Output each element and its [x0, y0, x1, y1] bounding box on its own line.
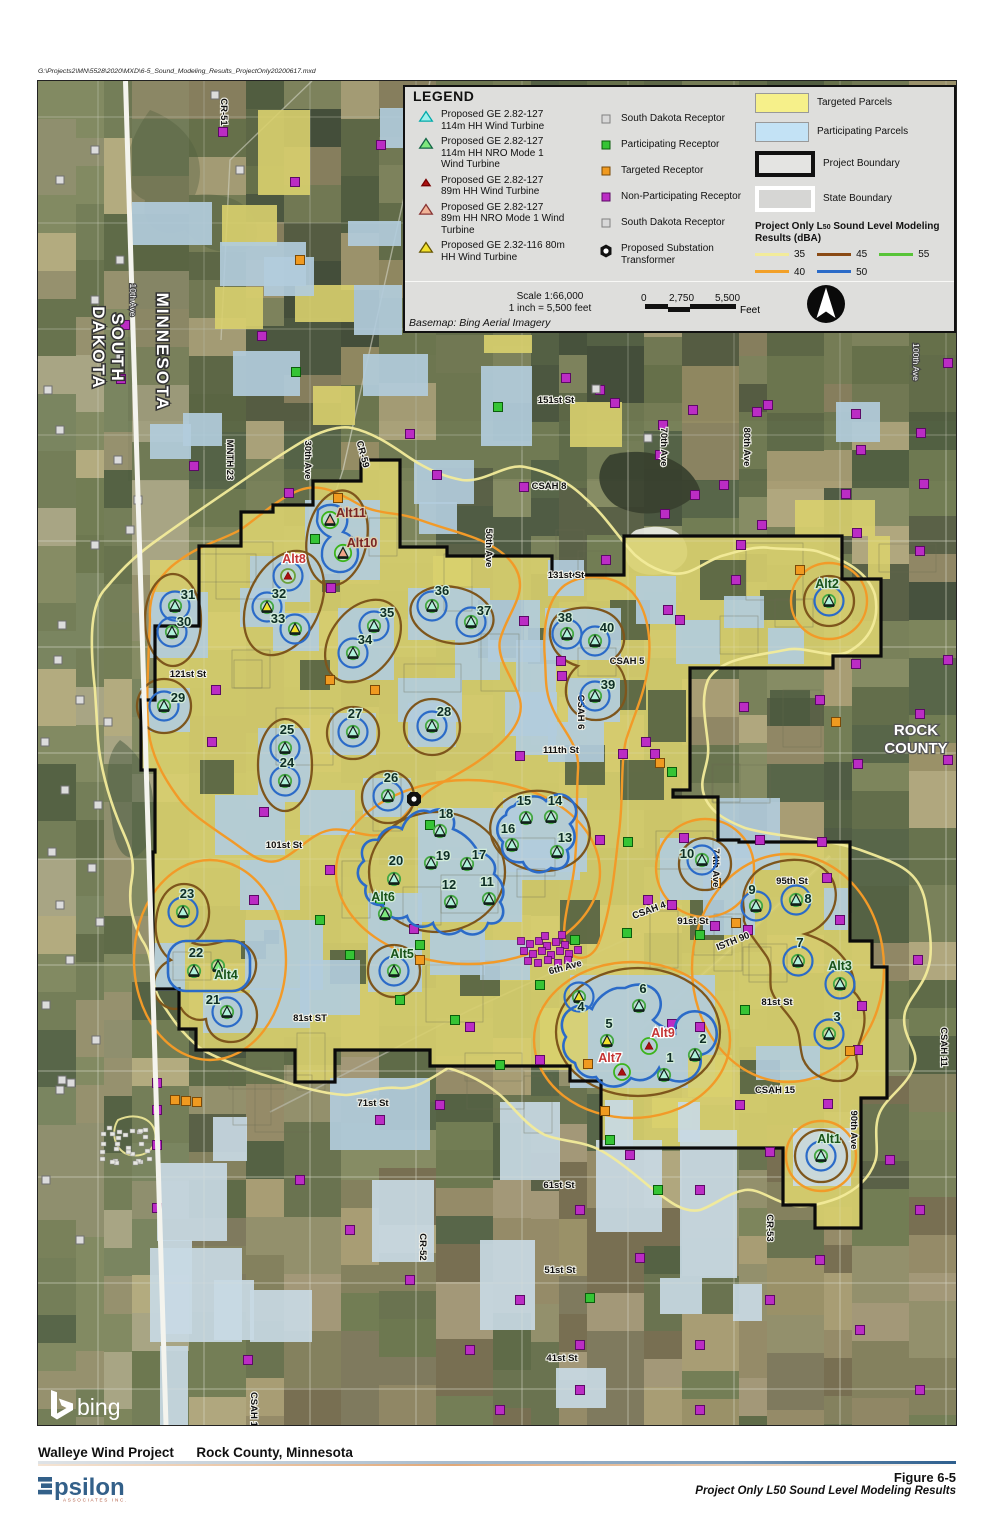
- svg-text:ROCK: ROCK: [894, 722, 938, 739]
- svg-text:3: 3: [833, 1009, 840, 1024]
- svg-text:7: 7: [796, 935, 803, 950]
- svg-text:CSAH 11: CSAH 11: [938, 1027, 949, 1067]
- svg-text:111th St: 111th St: [543, 745, 580, 756]
- svg-text:MINNESOTA: MINNESOTA: [153, 293, 172, 412]
- svg-text:81st St: 81st St: [761, 997, 793, 1008]
- svg-text:8: 8: [804, 891, 811, 906]
- svg-text:Alt4: Alt4: [214, 968, 238, 982]
- svg-text:39: 39: [601, 677, 615, 692]
- svg-text:61st St: 61st St: [543, 1180, 575, 1191]
- svg-text:Alt3: Alt3: [828, 959, 852, 973]
- svg-text:91st St: 91st St: [677, 916, 709, 927]
- svg-text:13: 13: [558, 830, 572, 845]
- svg-text:71st St: 71st St: [357, 1098, 389, 1109]
- svg-text:28: 28: [437, 704, 451, 719]
- svg-text:SOUTH: SOUTH: [108, 313, 127, 383]
- svg-text:Alt7: Alt7: [598, 1051, 622, 1065]
- svg-text:Alt8: Alt8: [282, 552, 306, 566]
- svg-text:27: 27: [348, 706, 362, 721]
- svg-text:CSAH 15: CSAH 15: [755, 1085, 796, 1096]
- svg-text:ASSOCIATES INC.: ASSOCIATES INC.: [63, 1498, 128, 1503]
- svg-text:80th Ave: 80th Ave: [741, 428, 752, 467]
- svg-text:5: 5: [605, 1016, 612, 1031]
- svg-text:30th Ave: 30th Ave: [302, 441, 313, 480]
- svg-text:90th Ave: 90th Ave: [848, 1111, 859, 1150]
- svg-text:bing: bing: [77, 1394, 120, 1420]
- svg-text:26: 26: [384, 770, 398, 785]
- svg-text:CSAH 17: CSAH 17: [248, 1392, 259, 1425]
- svg-text:20: 20: [389, 853, 403, 868]
- svg-text:Alt9: Alt9: [651, 1026, 675, 1040]
- svg-text:9: 9: [748, 882, 755, 897]
- svg-text:50th Ave: 50th Ave: [483, 529, 494, 568]
- svg-text:34: 34: [358, 632, 373, 647]
- svg-text:CR-52: CR-52: [417, 1233, 428, 1260]
- svg-text:4: 4: [577, 999, 585, 1014]
- svg-text:101st St: 101st St: [266, 840, 303, 851]
- svg-text:37: 37: [477, 603, 491, 618]
- svg-text:12: 12: [442, 877, 456, 892]
- svg-text:151st St: 151st St: [538, 395, 575, 406]
- svg-text:33: 33: [271, 611, 285, 626]
- svg-text:1: 1: [666, 1050, 673, 1065]
- svg-text:10th Ave: 10th Ave: [128, 284, 138, 317]
- svg-text:51st St: 51st St: [544, 1265, 576, 1276]
- svg-text:100th Ave: 100th Ave: [911, 343, 921, 381]
- svg-text:31: 31: [181, 587, 195, 602]
- svg-text:2: 2: [699, 1031, 706, 1046]
- svg-text:70th Ave: 70th Ave: [658, 428, 669, 467]
- svg-text:CR-53: CR-53: [764, 1214, 775, 1241]
- svg-text:DAKOTA: DAKOTA: [89, 306, 108, 389]
- svg-text:MNTH 23: MNTH 23: [224, 440, 235, 481]
- svg-text:Alt5: Alt5: [390, 947, 414, 961]
- svg-text:10: 10: [680, 846, 694, 861]
- svg-text:35: 35: [380, 605, 394, 620]
- svg-text:Alt6: Alt6: [371, 890, 395, 904]
- svg-text:22: 22: [189, 945, 203, 960]
- svg-text:41st St: 41st St: [546, 1353, 578, 1364]
- svg-text:16: 16: [501, 821, 515, 836]
- svg-text:6: 6: [639, 981, 646, 996]
- svg-text:24: 24: [280, 755, 295, 770]
- svg-text:Alt11: Alt11: [336, 506, 366, 520]
- svg-text:CR-51: CR-51: [218, 98, 229, 126]
- svg-text:30: 30: [177, 614, 191, 629]
- svg-text:11: 11: [480, 874, 494, 889]
- svg-text:40: 40: [600, 620, 614, 635]
- svg-text:121st St: 121st St: [170, 669, 207, 680]
- svg-text:131st St: 131st St: [548, 570, 585, 581]
- svg-text:38: 38: [558, 610, 572, 625]
- svg-text:21: 21: [206, 992, 220, 1007]
- svg-text:18: 18: [439, 806, 453, 821]
- svg-text:Alt1: Alt1: [817, 1132, 841, 1146]
- svg-text:19: 19: [436, 848, 450, 863]
- svg-text:Alt2: Alt2: [815, 577, 839, 591]
- svg-text:Alt10: Alt10: [347, 536, 378, 550]
- svg-text:81st ST: 81st ST: [293, 1013, 327, 1024]
- svg-text:36: 36: [435, 583, 449, 598]
- svg-text:29: 29: [171, 690, 185, 705]
- svg-text:32: 32: [272, 586, 286, 601]
- svg-text:15: 15: [517, 793, 531, 808]
- svg-text:COUNTY: COUNTY: [884, 740, 947, 757]
- svg-text:14: 14: [548, 793, 563, 808]
- svg-text:25: 25: [280, 722, 294, 737]
- svg-text:17: 17: [472, 847, 486, 862]
- svg-text:CSAH 5: CSAH 5: [610, 656, 646, 667]
- svg-text:Feet: Feet: [740, 305, 760, 315]
- svg-text:CSAH 8: CSAH 8: [532, 481, 567, 492]
- svg-text:23: 23: [180, 886, 194, 901]
